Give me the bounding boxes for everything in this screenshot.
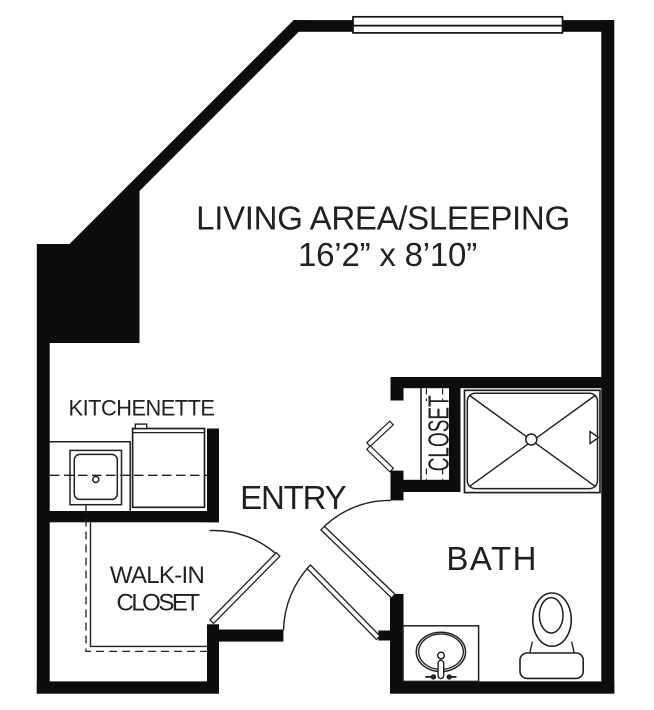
svg-text:CLOSET: CLOSET [424, 395, 456, 471]
svg-text:LIVING AREA/SLEEPING: LIVING AREA/SLEEPING [196, 200, 570, 237]
svg-text:CLOSET: CLOSET [116, 590, 200, 617]
svg-text:BATH: BATH [446, 540, 538, 577]
svg-text:16’2” x 8’10”: 16’2” x 8’10” [298, 236, 477, 273]
svg-text:WALK-IN: WALK-IN [110, 562, 204, 589]
svg-text:ENTRY: ENTRY [240, 479, 346, 516]
svg-text:KITCHENETTE: KITCHENETTE [69, 396, 215, 421]
